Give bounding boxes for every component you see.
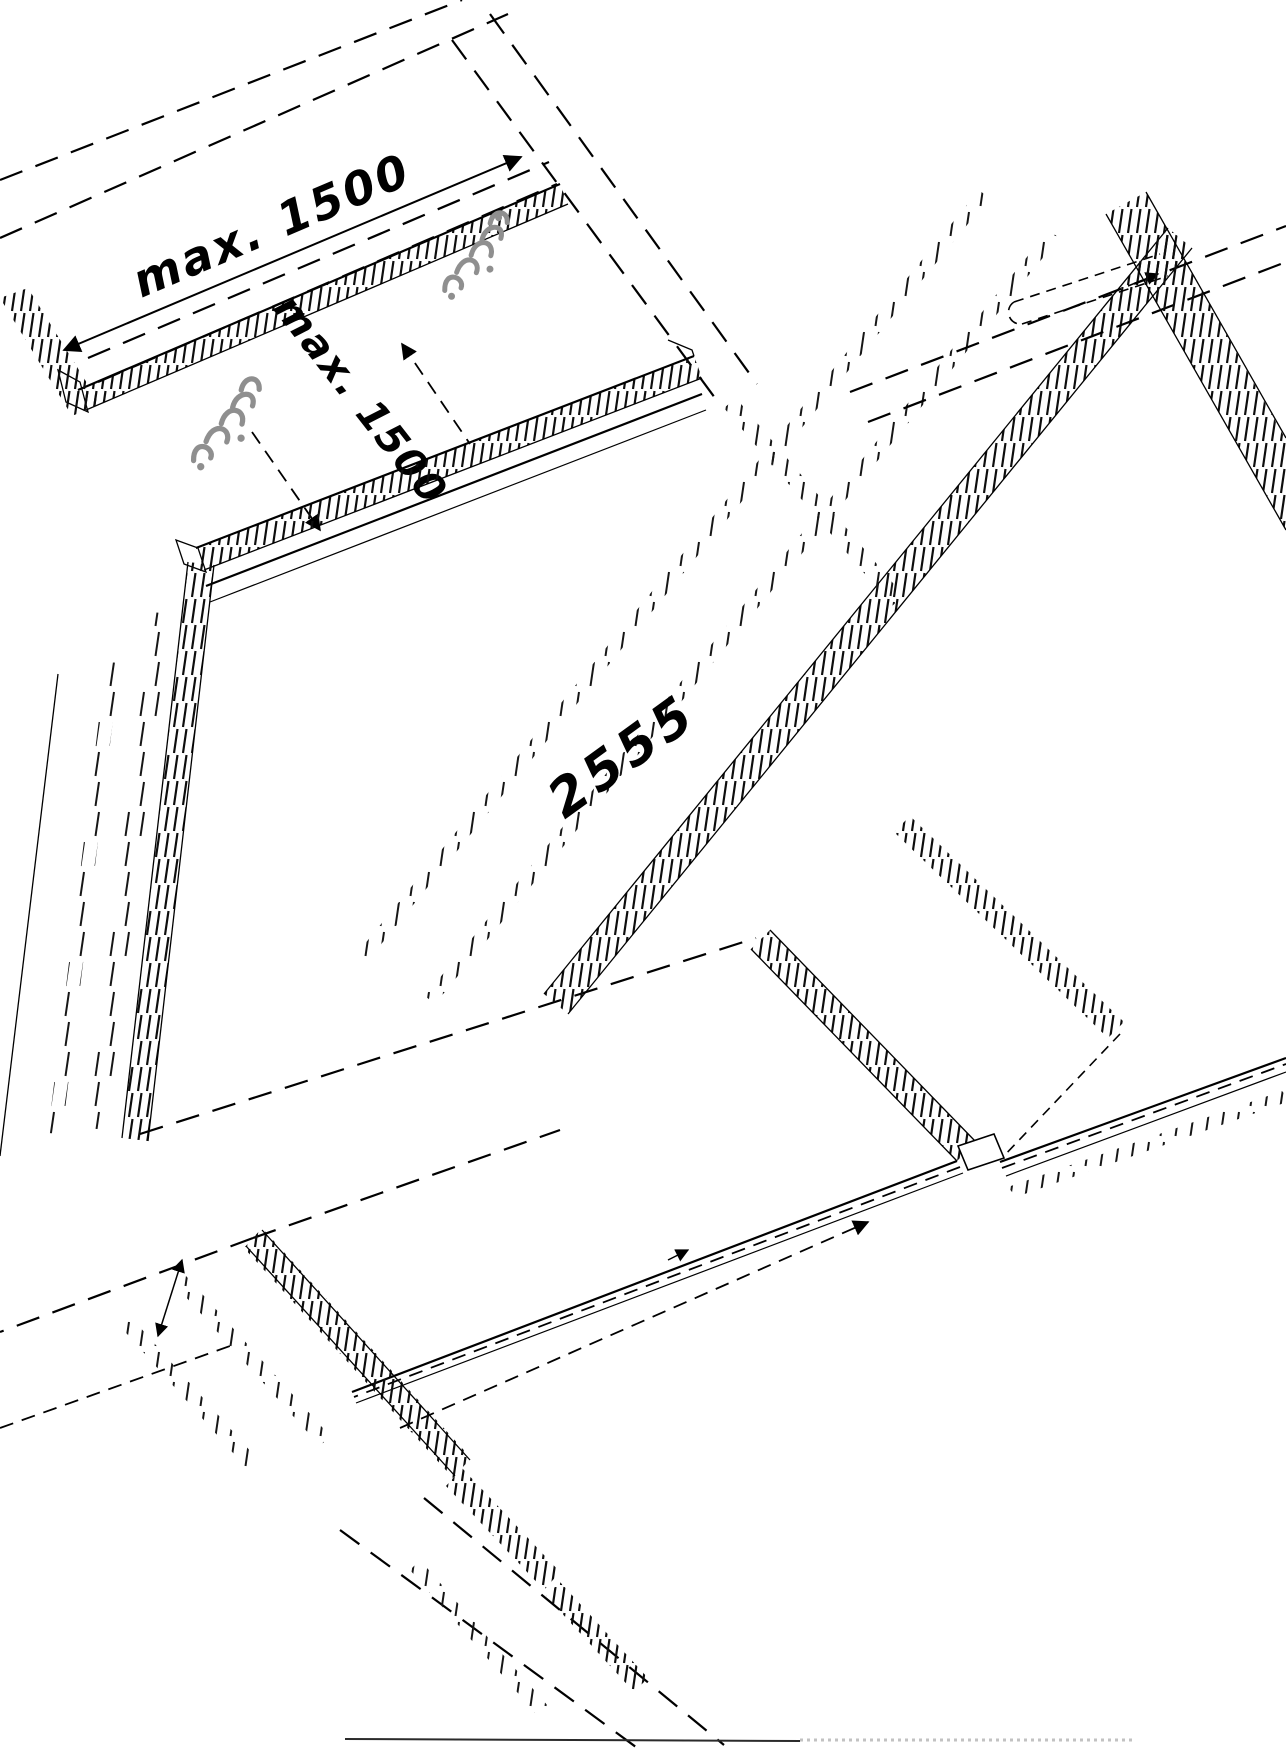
- rail-fragment-left-edge: [0, 288, 100, 416]
- fastener-mark-icon: [173, 377, 281, 472]
- drawing-baseline: [345, 1739, 1135, 1741]
- bottom-strip-panel: [352, 1161, 963, 1428]
- technical-drawing-canvas: max. 1500 max. 1500: [0, 0, 1286, 1750]
- bottom-left-panels: [0, 1130, 724, 1750]
- main-panel-hidden-bottom-edge: [140, 938, 756, 1134]
- arrowhead-icon: [668, 1250, 688, 1260]
- slide-direction-leader: [400, 1222, 868, 1428]
- right-panel-right-edge: [1106, 192, 1286, 530]
- isometric-panel-assembly-drawing: max. 1500 max. 1500: [0, 0, 1286, 1750]
- right-panel-lower-edge: [751, 930, 976, 1161]
- rail-end-notch: [668, 340, 694, 356]
- main-panel: 2555: [0, 190, 1192, 1156]
- right-panel: [751, 192, 1286, 1197]
